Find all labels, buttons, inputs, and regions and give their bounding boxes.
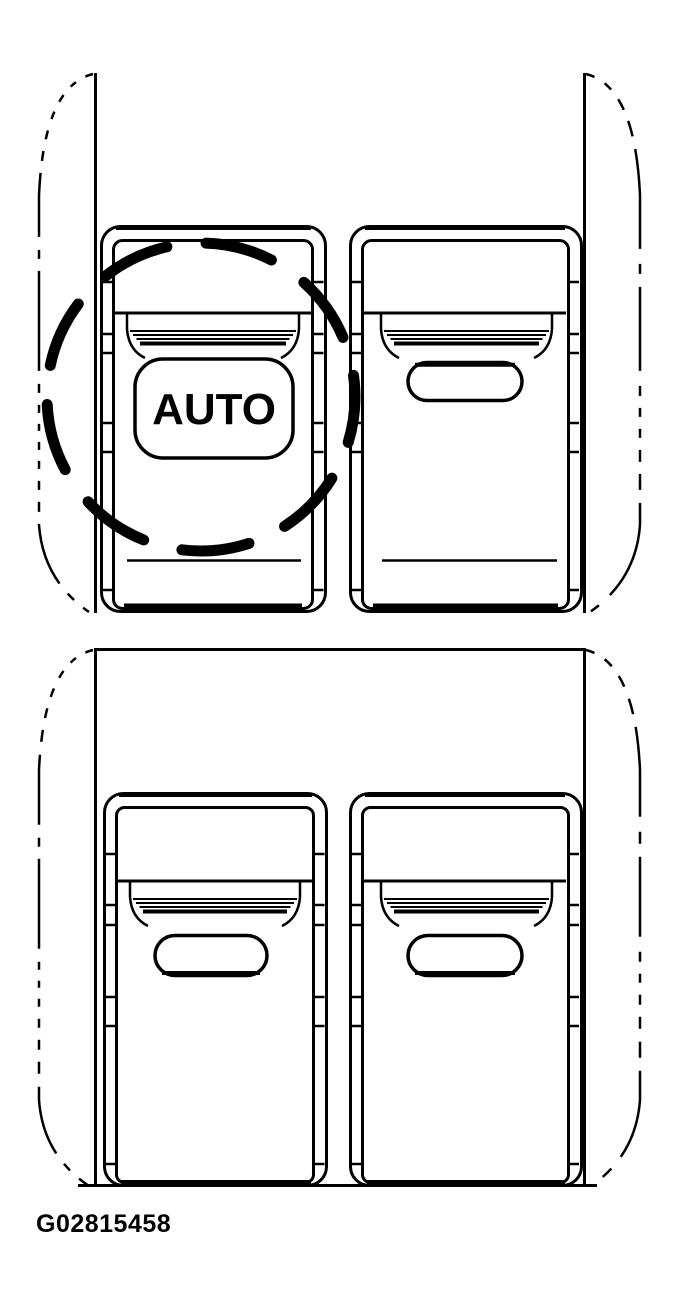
top-panel: AUTO: [39, 73, 640, 613]
bottom-panel-dashed-contour-left: [39, 650, 93, 1186]
mounting-ticks: [106, 854, 325, 1164]
power-window-switch-figure: AUTO: [0, 0, 679, 1306]
switch-bezel: [351, 227, 582, 612]
auto-button-label: AUTO: [152, 385, 276, 434]
switch-body: [117, 808, 314, 1183]
top-panel-dashed-contour-right: [586, 74, 640, 612]
bottom-panel: [39, 648, 640, 1186]
switch-body: [363, 808, 569, 1183]
front-window-switch: [351, 227, 582, 612]
bottom-panel-dashed-contour-right: [586, 650, 640, 1186]
rocker-grip-ridges: [381, 882, 552, 926]
mounting-ticks: [352, 282, 579, 590]
mounting-ticks: [352, 854, 579, 1164]
switch-body: [363, 241, 569, 609]
figure-id: G02815458: [36, 1210, 171, 1238]
rear-right-window-switch: [351, 794, 582, 1186]
rocker-grip-ridges: [130, 882, 300, 926]
rocker-grip-ridges: [381, 314, 552, 358]
rear-left-window-switch: [105, 794, 327, 1186]
top-panel-dashed-contour-left: [39, 74, 93, 612]
window-button: [408, 363, 522, 401]
window-button: [408, 936, 522, 976]
rocker-grip-ridges: [127, 314, 299, 358]
window-button: [155, 936, 267, 976]
switch-bezel: [105, 794, 327, 1186]
switch-bezel: [351, 794, 582, 1186]
window-switch-diagram: AUTO: [0, 0, 679, 1306]
